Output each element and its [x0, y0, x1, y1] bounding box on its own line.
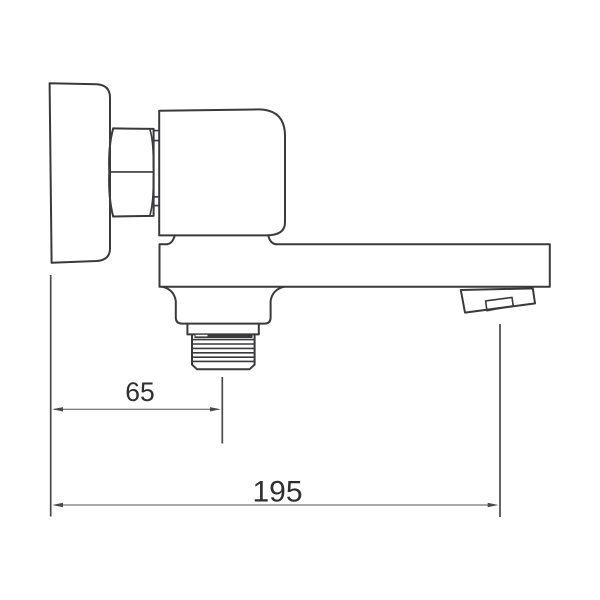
wall-flange [50, 83, 110, 262]
drawing-page: 65 195 [0, 0, 600, 600]
arrowhead-right-65 [210, 407, 221, 411]
dimension-annotations: 65 195 [51, 275, 500, 517]
dimension-value-195: 195 [252, 476, 302, 509]
washer [187, 324, 258, 335]
thread-ridges [192, 340, 254, 362]
faucet-outline [50, 83, 550, 369]
dimension-overall-length: 195 [52, 476, 498, 509]
neck-fillet-right [268, 235, 276, 244]
arrowhead-left-195 [52, 503, 63, 507]
arrowhead-left-65 [52, 407, 63, 411]
dimension-value-65: 65 [125, 377, 154, 407]
dimension-spout-offset: 65 [52, 377, 220, 412]
valve-body [159, 109, 285, 235]
neck-fillet-left [167, 235, 175, 244]
thread-start-notch [196, 335, 208, 337]
faucet-technical-drawing: 65 195 [0, 0, 600, 600]
arrowhead-right-195 [488, 503, 499, 507]
spout-arm [160, 244, 550, 286]
threaded-connector [192, 334, 255, 369]
inlet-housing [163, 287, 285, 324]
